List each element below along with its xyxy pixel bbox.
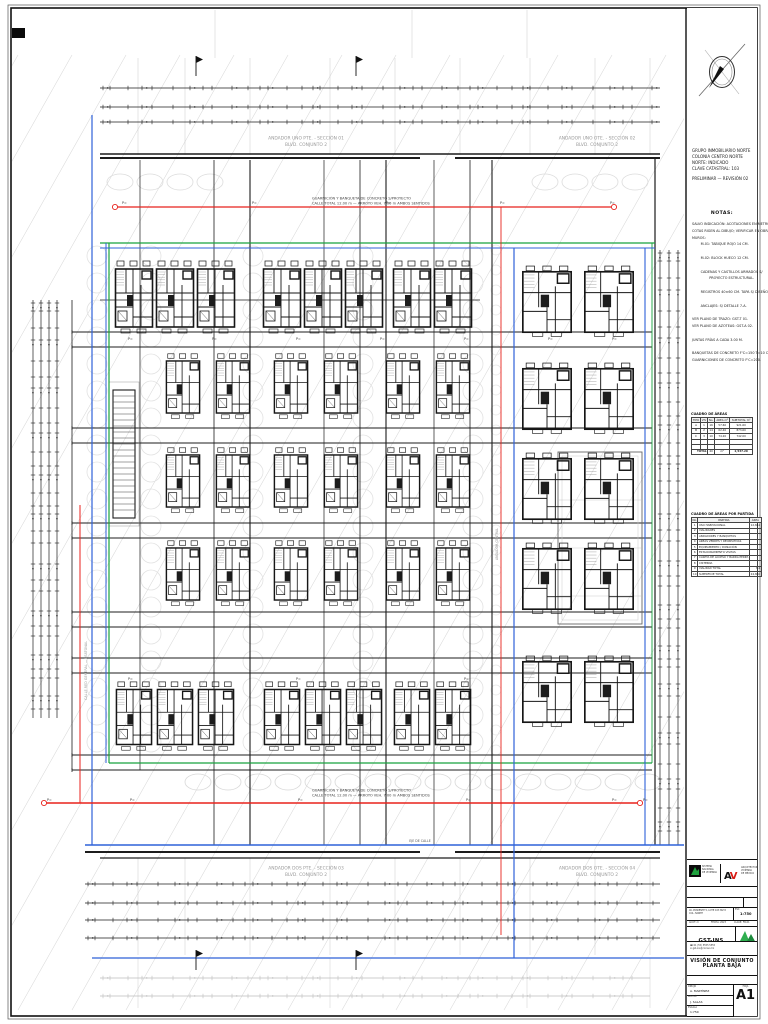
svg-text:P=: P= (464, 337, 469, 341)
table-total-row: TOTAL40m²2,537.20 (692, 449, 753, 454)
note-line (692, 262, 756, 269)
svg-text:ANDADOR UNO OTE. - SECCIÓN 02: ANDADOR UNO OTE. - SECCIÓN 02 (559, 135, 636, 142)
note-line: PROYECTO ESTRUCTURAL. (692, 275, 756, 282)
title-block-panel: GRUPO INMOBILIARIO NORTECOLONIA CENTRO N… (687, 8, 757, 1016)
svg-text:BLVD. CONJUNTO 2: BLVD. CONJUNTO 2 (576, 142, 618, 148)
table-title: CUADRO DE ÁREAS POR PARTIDA (691, 512, 762, 516)
svg-text:P=: P= (298, 798, 303, 802)
meta-row: DIBUJÓ A. MARTÍNEZ (687, 985, 733, 996)
note-line: VER PLANO DE TRAZO: GST-T 01. (692, 316, 756, 323)
svg-text:ANDADOR CENTRAL: ANDADOR CENTRAL (495, 528, 499, 560)
meta-value: J. SALAS (690, 1000, 703, 1004)
meta-label: DIBUJÓ (688, 986, 696, 989)
svg-text:P=: P= (612, 798, 617, 802)
svg-text:P=: P= (500, 201, 505, 205)
av-logo: AV ARQUITECTURAVIVIENDADE MÉXICO (724, 864, 755, 883)
svg-text:P=: P= (464, 677, 469, 681)
plotted-sheet: { "panel": { "info_lines": [ "GRUPO INMO… (0, 0, 768, 1024)
north-arrow-icon (695, 38, 749, 102)
note-line: VER PLANO DE AZOTEAS: GST-A 02. (692, 323, 756, 330)
info-line: PRELIMINAR — REVISIÓN 02 (692, 176, 754, 182)
note-line: CADENAS Y CASTILLOS ARMADOS S/ (692, 269, 756, 276)
partidas-table: CUADRO DE ÁREAS POR PARTIDANo.PARTIDAÁRE… (691, 512, 762, 577)
note-line (692, 309, 756, 316)
svg-text:P=: P= (466, 798, 471, 802)
note-line (692, 282, 756, 289)
note-line (692, 248, 756, 255)
address-line2: COL. NORTE (689, 913, 731, 916)
contact-row: ☎ 01 (55) 5555 5555 ✉ gst-ins@correo.mx (687, 942, 757, 956)
project-name-row: CONJUNTO FB T1 (687, 898, 757, 908)
drawing-content: P=P=P=P=P=P=P=P=P=P=P=P=P=P=P=P=P=P=P=P=… (0, 10, 768, 1010)
svg-text:CALLE RED GENERAL — PEATONAL: CALLE RED GENERAL — PEATONAL (84, 641, 88, 700)
scale-label: ESC (735, 909, 740, 912)
svg-text:BLVD. CONJUNTO 2: BLVD. CONJUNTO 2 (285, 872, 327, 878)
svg-text:GUARNICIÓN Y BANQUETA DE CONCR: GUARNICIÓN Y BANQUETA DE CONCRETO S/PROY… (312, 196, 411, 201)
project-type-row: PROYECTO EJECUTIVO (687, 887, 757, 898)
info-line: CLAVE CATASTRAL: 103 (692, 166, 754, 172)
svg-text:ANDADOR DOS PTE. - SECCIÓN 03: ANDADOR DOS PTE. - SECCIÓN 03 (268, 865, 344, 872)
svg-text:P=: P= (212, 337, 217, 341)
meta-value: A. MARTÍNEZ (690, 989, 709, 993)
vivienda-logo-icon (689, 865, 701, 877)
logos-row: SISTEMANACIONALDE VIVIENDA AV ARQUITECTU… (687, 860, 757, 887)
svg-text:ANDADOR UNO PTE. - SECCIÓN 01: ANDADOR UNO PTE. - SECCIÓN 01 (268, 135, 344, 142)
svg-text:P=: P= (47, 798, 52, 802)
meta-value: 1:750 (690, 1010, 699, 1014)
address-row: AV. PONIENTE 5, LOTE 103 MZ 8 COL. NORTE… (687, 908, 757, 921)
logo-text-line: DE VIVIENDA (702, 872, 717, 875)
meta-row: REVISÓ J. SALAS (687, 996, 733, 1007)
meta-label: REVISÓ (688, 996, 697, 999)
title-block: SISTEMANACIONALDE VIVIENDA AV ARQUITECTU… (687, 859, 757, 1016)
strip-acot: ACOT: m (689, 922, 699, 925)
note-line (692, 343, 756, 350)
note-line: M-01: TABIQUE ROJO 14 CM. (692, 241, 756, 248)
svg-text:P=: P= (548, 337, 553, 341)
mountains-logo-icon (737, 928, 757, 942)
svg-text:CALLE TOTAL 12.00 m — ARROYO V: CALLE TOTAL 12.00 m — ARROYO VEH. 7.00 m… (312, 794, 431, 798)
svg-text:P=: P= (252, 201, 257, 205)
areas-table: CUADRO DE ÁREASTIPOVIVNo.ÁREA m²SUBTOTAL… (691, 412, 753, 455)
svg-text:EJE DE CALLE: EJE DE CALLE (409, 839, 430, 843)
note-line: GUARNICIONES DE CONCRETO F'C=200. (692, 357, 756, 364)
svg-text:P=: P= (643, 798, 648, 802)
svg-text:P=: P= (130, 798, 135, 802)
sheet-title-2: PLANTA BAJA (687, 964, 757, 969)
svg-text:P=: P= (122, 201, 127, 205)
meta-row: ESCALA 1:750 (687, 1006, 733, 1017)
scale-value: 1:750 (740, 912, 751, 916)
site-plan-drawing: P=P=P=P=P=P=P=P=P=P=P=P=P=P=P=P=P=P=P=P=… (0, 0, 768, 1024)
note-line (692, 330, 756, 337)
table-title: CUADRO DE ÁREAS (691, 412, 753, 416)
note-line: SALVO INDICACIÓN: ACOTACIONES EN METROS. (692, 221, 756, 228)
svg-text:P=: P= (296, 337, 301, 341)
meta-label: ESCALA (688, 1007, 697, 1010)
project-info-block: GRUPO INMOBILIARIO NORTECOLONIA CENTRO N… (692, 148, 754, 182)
logo-text-line: DE MÉXICO (741, 873, 757, 876)
svg-text:P=: P= (610, 201, 615, 205)
note-line (692, 296, 756, 303)
note-line: JUNTAS FRÍAS A CADA 3.00 M. (692, 337, 756, 344)
strip-clave: CLAVE: FB-01 (734, 922, 750, 925)
note-line: COTAS RIGEN AL DIBUJO; VERIFICAR EN OBRA… (692, 228, 756, 235)
contact-mail: ✉ gst-ins@correo.mx (690, 948, 715, 951)
sheet-number: A1 (734, 989, 757, 1003)
table-row: 10SUPERFICIE TOTAL24,880 (692, 572, 762, 577)
svg-text:P=: P= (612, 337, 617, 341)
svg-text:BLVD. CONJUNTO 2: BLVD. CONJUNTO 2 (285, 142, 327, 148)
sheet-subtitle-row: ALBAÑILERÍA (687, 976, 757, 985)
svg-text:P=: P= (380, 337, 385, 341)
svg-text:P=: P= (128, 677, 133, 681)
note-line: M-02: BLOCK HUECO 12 CM. (692, 255, 756, 262)
svg-text:P=: P= (128, 337, 133, 341)
notes-title: NOTAS: (687, 211, 757, 216)
svg-text:ANDADOR DOS OTE. - SECCIÓN 04: ANDADOR DOS OTE. - SECCIÓN 04 (559, 865, 635, 872)
firm-row: GST-INS GPO-MX (687, 927, 757, 942)
note-line: BANQUETAS DE CONCRETO F'C=150 T=10 CM. (692, 350, 756, 357)
notes-block: SALVO INDICACIÓN: ACOTACIONES EN METROS.… (692, 221, 756, 364)
sheet-number-cell: HOJA A1 (733, 985, 757, 1017)
av-logo-letter-v: V (730, 871, 738, 882)
sheet-title-row: VISIÓN DE CONJUNTO PLANTA BAJA (687, 956, 757, 976)
svg-text:BLVD. CONJUNTO 2: BLVD. CONJUNTO 2 (576, 872, 618, 878)
note-line: ANCLAJES: S/ DETALLE 7-A. (692, 303, 756, 310)
left-logo: SISTEMANACIONALDE VIVIENDA (689, 864, 721, 883)
svg-text:GUARNICIÓN Y BANQUETA DE CONCR: GUARNICIÓN Y BANQUETA DE CONCRETO S/PROY… (312, 788, 411, 793)
svg-text:CALLE TOTAL 12.00 m — ARROYO V: CALLE TOTAL 12.00 m — ARROYO VEH. 7.00 m… (312, 202, 431, 206)
note-line: MUROS: (692, 235, 756, 242)
note-line: REGISTROS 40×60 CM. TAPA S/ DISEÑO. (692, 289, 756, 296)
meta-grid-row: DIBUJÓ A. MARTÍNEZ REVISÓ J. SALAS ESCAL… (687, 985, 757, 1017)
svg-text:P=: P= (296, 677, 301, 681)
strip-fecha: FECHA: 2023 (711, 922, 726, 925)
